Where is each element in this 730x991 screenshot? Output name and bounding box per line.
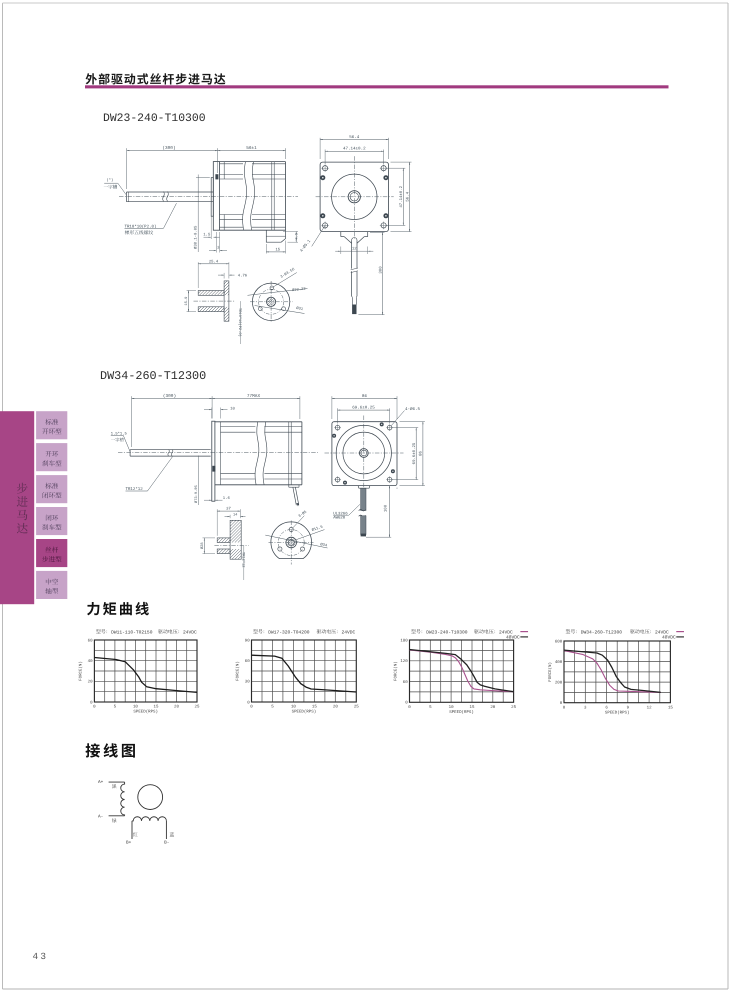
svg-text:0: 0: [563, 705, 566, 710]
svg-text:400: 400: [555, 660, 563, 665]
svg-text:DW11-110-T02150: DW11-110-T02150: [111, 629, 153, 635]
svg-text:TR10*10(P2.0): TR10*10(P2.0): [237, 308, 242, 337]
svg-text:47.14±0.2: 47.14±0.2: [343, 147, 366, 152]
svg-text:A-: A-: [98, 815, 103, 820]
svg-text:40: 40: [88, 659, 93, 664]
svg-text:25: 25: [354, 705, 359, 710]
svg-text:48VDC: 48VDC: [662, 634, 676, 640]
svg-text:4.5: 4.5: [295, 233, 300, 239]
svg-text:0: 0: [93, 705, 96, 710]
svg-text:12: 12: [647, 705, 652, 710]
svg-text:86: 86: [419, 451, 424, 456]
svg-text:1.5: 1.5: [203, 233, 211, 238]
svg-text:77MAX: 77MAX: [247, 394, 261, 399]
svg-text:DW17-320-T04200: DW17-320-T04200: [268, 629, 310, 635]
svg-text:FORCE(N): FORCE(N): [548, 662, 553, 682]
svg-text:1.6: 1.6: [223, 496, 231, 501]
svg-text:30: 30: [245, 680, 250, 685]
svg-text:3: 3: [584, 705, 587, 710]
svg-text:FORCE(N): FORCE(N): [394, 661, 399, 681]
svg-text:SPEED(RPS): SPEED(RPS): [449, 710, 474, 715]
svg-text:SPEED(RPS): SPEED(RPS): [133, 710, 158, 715]
svg-text:Ø31: Ø31: [296, 306, 304, 312]
svg-text:(300): (300): [163, 393, 176, 399]
svg-text:69.6±0.25: 69.6±0.25: [412, 442, 417, 464]
svg-text:DW34-260-T12300: DW34-260-T12300: [581, 629, 623, 635]
svg-text:UL3266: UL3266: [333, 511, 348, 516]
svg-text:3-Ø5: 3-Ø5: [298, 509, 309, 519]
svg-text:0: 0: [250, 705, 253, 710]
svg-text:10: 10: [449, 705, 454, 710]
svg-text:24VDC: 24VDC: [655, 629, 669, 635]
svg-text:(300): (300): [162, 145, 175, 151]
svg-text:200: 200: [555, 681, 563, 686]
svg-text:180: 180: [400, 638, 408, 643]
svg-text:86: 86: [362, 394, 368, 399]
svg-text:48VDC: 48VDC: [506, 634, 520, 640]
svg-text:100: 100: [384, 504, 389, 512]
svg-text:DW23-240-T10300: DW23-240-T10300: [426, 629, 468, 635]
svg-text:20: 20: [88, 680, 93, 685]
svg-text:6: 6: [605, 705, 608, 710]
svg-text:24VDC: 24VDC: [341, 629, 355, 635]
svg-text:60: 60: [88, 638, 93, 643]
svg-text:43: 43: [33, 951, 49, 962]
svg-text:Ø11.5: Ø11.5: [311, 524, 324, 532]
svg-text:47.14±0.2: 47.14±0.2: [399, 185, 404, 207]
svg-text:60: 60: [403, 680, 408, 685]
svg-text:AWG20: AWG20: [333, 516, 346, 521]
svg-text:120: 120: [400, 659, 408, 664]
svg-text:SPEED(RPS): SPEED(RPS): [292, 710, 317, 715]
svg-text:TR12*12: TR12*12: [241, 552, 246, 568]
svg-text:(*): (*): [107, 178, 114, 183]
svg-text:5: 5: [114, 705, 117, 710]
svg-text:10: 10: [230, 406, 235, 411]
svg-text:69.6±0.25: 69.6±0.25: [352, 405, 375, 410]
svg-text:A+: A+: [98, 780, 104, 785]
svg-text:10: 10: [291, 705, 296, 710]
svg-text:25: 25: [511, 705, 516, 710]
svg-text:20: 20: [333, 705, 338, 710]
svg-text:Ø22.22: Ø22.22: [292, 286, 307, 293]
svg-text:4.76: 4.76: [238, 274, 248, 279]
svg-text:300: 300: [378, 266, 383, 274]
svg-text:56.4: 56.4: [349, 135, 360, 140]
svg-text:25.4: 25.4: [209, 259, 219, 264]
svg-text:FORCE(N): FORCE(N): [79, 661, 84, 681]
svg-text:5: 5: [271, 705, 274, 710]
svg-text:FORCE(N): FORCE(N): [236, 661, 241, 681]
svg-text:SPEED(RPS): SPEED(RPS): [605, 710, 630, 715]
svg-text:20: 20: [490, 705, 495, 710]
svg-text:15: 15: [668, 705, 673, 710]
svg-text:25: 25: [195, 705, 200, 710]
svg-text:Ø38.1-0.05: Ø38.1-0.05: [194, 225, 199, 249]
svg-text:9: 9: [627, 705, 630, 710]
svg-text:0: 0: [408, 705, 411, 710]
svg-text:56±1: 56±1: [246, 146, 257, 151]
svg-text:15: 15: [469, 705, 474, 710]
svg-text:15: 15: [153, 705, 158, 710]
svg-text:15: 15: [275, 247, 280, 252]
svg-text:5: 5: [429, 705, 432, 710]
svg-text:600: 600: [555, 639, 563, 644]
svg-text:DW23-240-T10300: DW23-240-T10300: [103, 113, 206, 125]
svg-text:90: 90: [245, 638, 250, 643]
svg-text:15: 15: [312, 705, 317, 710]
svg-text:37: 37: [226, 507, 231, 512]
svg-text:Ø73-0.05: Ø73-0.05: [194, 485, 199, 503]
svg-text:12: 12: [352, 247, 357, 252]
svg-text:4-Ø5.1: 4-Ø5.1: [299, 239, 312, 254]
svg-text:B+: B+: [126, 841, 132, 846]
svg-text:60: 60: [245, 659, 250, 664]
svg-text:14: 14: [233, 512, 238, 517]
svg-text:10: 10: [133, 705, 138, 710]
svg-text:4-Ø6.5: 4-Ø6.5: [405, 407, 421, 412]
svg-text:24VDC: 24VDC: [183, 629, 197, 635]
svg-text:24VDC: 24VDC: [499, 629, 513, 635]
svg-text:56.4: 56.4: [405, 191, 410, 201]
svg-text:Ø28: Ø28: [200, 542, 205, 549]
svg-text:20: 20: [174, 705, 179, 710]
svg-text:15.9: 15.9: [184, 297, 189, 306]
svg-text:B-: B-: [164, 841, 169, 846]
svg-text:DW34-260-T12300: DW34-260-T12300: [100, 369, 206, 383]
